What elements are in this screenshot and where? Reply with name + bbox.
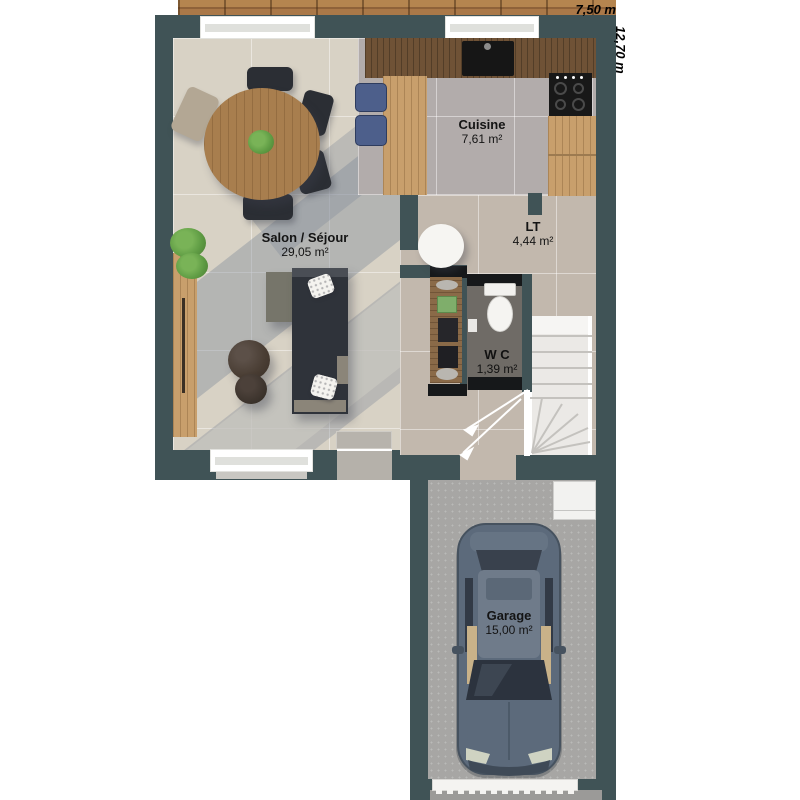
dimension-width-label: 7,50 m [520,2,616,17]
knob [564,76,567,79]
room-label-wc: W C 1,39 m² [457,347,537,376]
plant [176,253,208,279]
car [452,520,566,780]
kitchen-cabinet [548,116,596,196]
sideboard [173,253,197,437]
kitchen-window [445,16,539,39]
garage-door-seal [436,790,576,794]
water-heater [553,481,596,520]
floor-plan: Cuisine 7,61 m² Salon / Séjour 29,05 m² … [0,0,800,800]
living-bottom-window [210,449,313,472]
bar-stool [355,115,387,146]
kitchen-sink [462,41,514,76]
console-tray-dark [438,346,458,368]
faucet [484,43,491,50]
window-outer-ledge [216,472,307,479]
console-tray [436,280,458,290]
burner [572,98,585,111]
living-top-window [200,16,315,39]
room-label-garage: Garage 15,00 m² [459,608,559,637]
sideboard-handle [182,298,185,393]
bar-stool [355,83,387,112]
kitchen-lt-wall-stub [528,193,542,215]
sofa-end-cap [294,400,346,412]
room-label-lt: LT 4,44 m² [493,219,573,248]
table-centerpiece-plant [248,130,274,154]
knob [556,76,559,79]
room-label-cuisine: Cuisine 7,61 m² [432,117,532,146]
burner [573,83,584,94]
cabinet-divider [548,154,596,156]
knob [572,76,575,79]
door-swing-lines [455,383,537,461]
coffee-table [235,374,267,404]
cooktop [549,73,592,116]
dining-chair [247,67,293,91]
burner [555,99,566,110]
sofa-armrest [337,356,348,384]
utility-round-table [418,224,464,268]
lt-partition-wall [400,193,418,250]
entry-door-mat [336,431,392,449]
toilet-bowl [487,296,513,332]
burner [554,82,567,95]
room-label-salon: Salon / Séjour 29,05 m² [245,230,365,259]
toilet-paper-holder [468,319,477,332]
console-green-box [437,296,457,313]
knob [580,76,583,79]
kitchen-bar-counter [383,76,427,195]
dimension-height-label: 12,70 m [613,26,628,116]
water-heater-line [554,510,595,511]
staircase [528,316,592,455]
entry-door-opening [337,449,392,480]
console-tray-dark [438,318,458,342]
toilet-tank [484,283,516,296]
console-bowl [436,368,458,380]
